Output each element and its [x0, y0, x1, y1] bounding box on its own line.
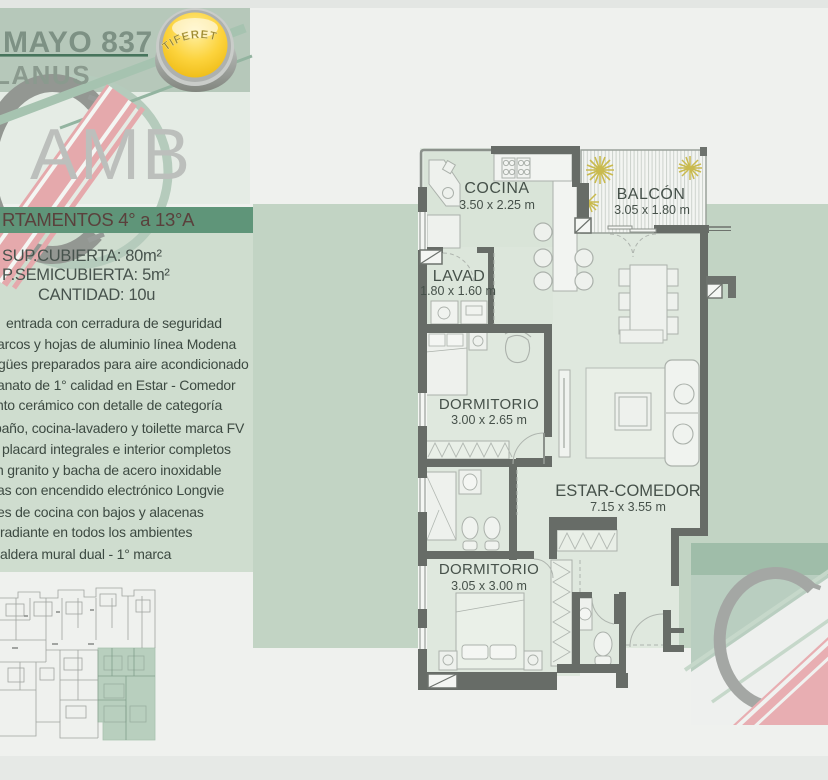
svg-text:ESTAR-COMEDOR: ESTAR-COMEDOR: [555, 482, 701, 500]
svg-text:BALCÓN: BALCÓN: [617, 184, 686, 203]
svg-text:3.05 x 3.00 m: 3.05 x 3.00 m: [451, 579, 527, 593]
svg-text:DORMITORIO: DORMITORIO: [439, 561, 539, 578]
svg-text:AMB: AMB: [30, 115, 192, 195]
svg-text:entrada con cerradura de segur: entrada con cerradura de seguridad: [6, 315, 222, 331]
svg-text:SUP.CUBIERTA: 80m²: SUP.CUBIERTA: 80m²: [2, 247, 162, 265]
svg-text:LAVAD: LAVAD: [433, 268, 486, 285]
svg-text:as con encendido electrónico L: as con encendido electrónico Longvie: [0, 482, 224, 498]
svg-text:COCINA: COCINA: [464, 180, 529, 197]
svg-text:n granito y bacha de acero ino: n granito y bacha de acero inoxidable: [0, 462, 222, 478]
svg-text:nto cerámico con detalle de ca: nto cerámico con detalle de categoría: [0, 397, 222, 413]
svg-text:aldera mural dual - 1° marca: aldera mural dual - 1° marca: [0, 546, 172, 562]
svg-text:LANUS: LANUS: [0, 60, 91, 90]
svg-text:placard integrales e interior: placard integrales e interior completos: [2, 441, 231, 457]
svg-text:baño, cocina-lavadero y toilet: baño, cocina-lavadero y toilette marca F…: [0, 420, 245, 436]
svg-text:CANTIDAD: 10u: CANTIDAD: 10u: [38, 286, 155, 304]
svg-text:radiante en todos los ambiente: radiante en todos los ambientes: [0, 524, 192, 540]
svg-text:es de cocina con bajos y alace: es de cocina con bajos y alacenas: [0, 504, 204, 520]
svg-text:DORMITORIO: DORMITORIO: [439, 396, 539, 413]
svg-text:3.05 x 1.80 m: 3.05 x 1.80 m: [614, 203, 690, 217]
svg-text:7.15 x 3.55 m: 7.15 x 3.55 m: [590, 500, 666, 514]
svg-text:anato de 1° calidad en Estar -: anato de 1° calidad en Estar - Comedor: [0, 377, 236, 393]
svg-text:3.50 x 2.25 m: 3.50 x 2.25 m: [459, 198, 535, 212]
svg-text:P.SEMICUBIERTA: 5m²: P.SEMICUBIERTA: 5m²: [2, 266, 170, 284]
svg-text:3.00 x 2.65 m: 3.00 x 2.65 m: [451, 413, 527, 427]
svg-text:RTAMENTOS 4° a 13°A: RTAMENTOS 4° a 13°A: [2, 209, 195, 230]
svg-text:gües preparados para aire acon: gües preparados para aire acondicionado: [0, 356, 249, 372]
svg-text:arcos y hojas de aluminio líne: arcos y hojas de aluminio línea Modena: [0, 336, 237, 352]
svg-text:1.80 x 1.60 m: 1.80 x 1.60 m: [420, 284, 496, 298]
